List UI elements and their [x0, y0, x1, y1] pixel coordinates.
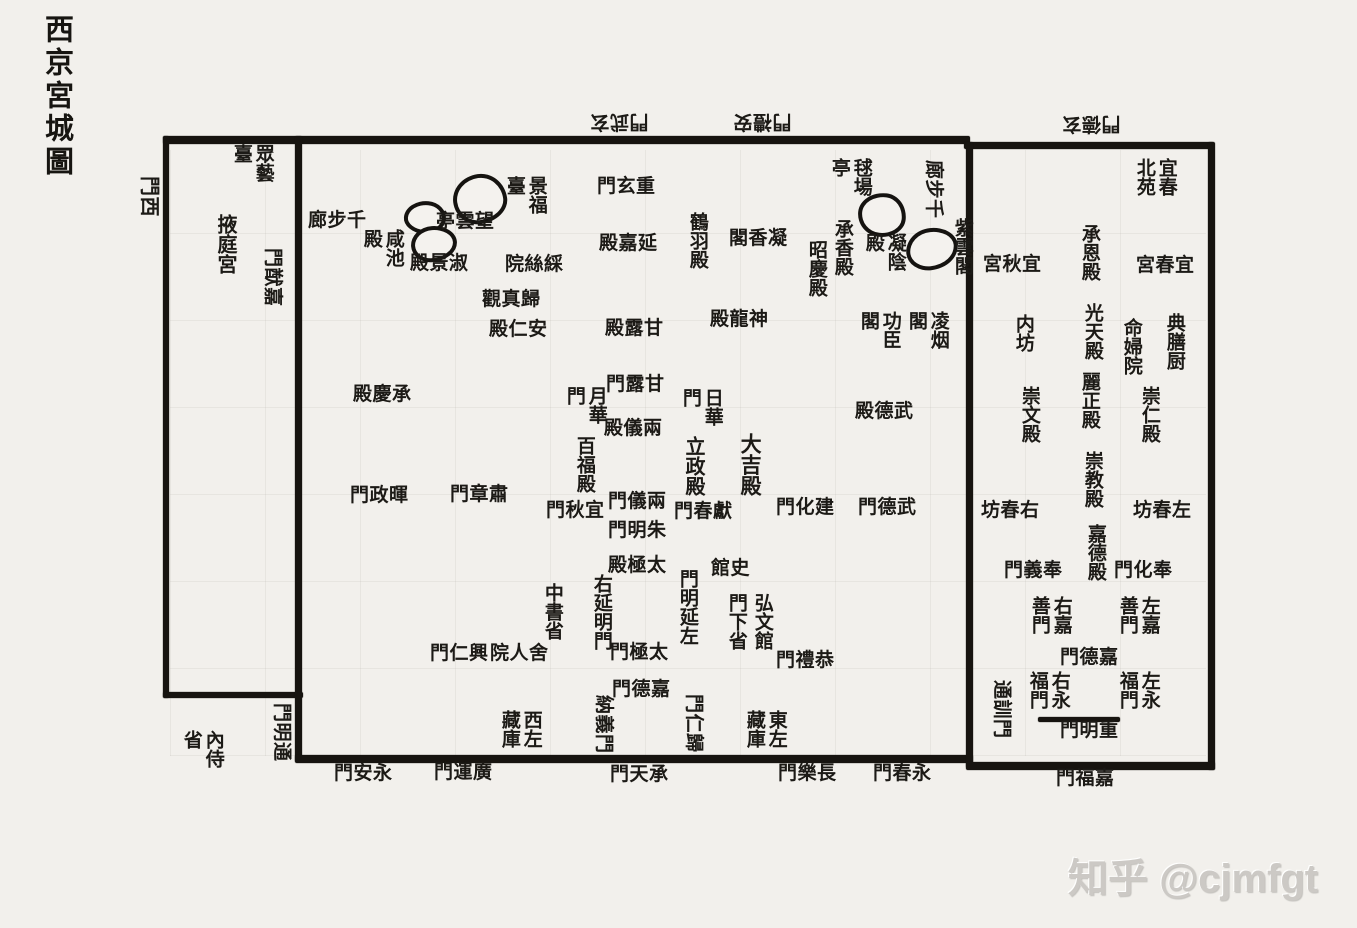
- north-wall-east: [964, 142, 1214, 149]
- liangyi-gate: 門儀兩: [608, 492, 667, 512]
- you-yanming-gate: 右延明門: [590, 574, 612, 650]
- xuande-gate: 門德玄: [1062, 113, 1121, 133]
- daji-hall: 大吉殿: [738, 433, 762, 496]
- ganlu-gate: 門露甘: [606, 375, 665, 395]
- anren-hall: 殿仁安: [489, 320, 548, 340]
- jiade-hall: 嘉德殿: [1084, 524, 1106, 581]
- neishi-department: 內侍省: [180, 730, 224, 774]
- chengen-hall: 承恩殿: [1078, 224, 1100, 281]
- nayi-gate: 納義門: [593, 695, 613, 754]
- taiji-hall: 殿極太: [608, 556, 667, 576]
- yiqiu-palace: 宮秋宜: [983, 255, 1042, 275]
- menxia-department: 門下省: [725, 593, 747, 650]
- gongchen-pavilion: 功臣閣: [857, 311, 901, 355]
- chengtian-gate: 門天承: [610, 765, 669, 785]
- xuanwu-gate: 門武玄: [590, 111, 649, 131]
- ningyin-hall: 凝陰殿: [862, 233, 906, 277]
- fenghua-gate: 門化奉: [1114, 561, 1173, 581]
- suzhang-gate: 門章肅: [450, 485, 509, 505]
- west-zuocang-store: 西左藏庫: [498, 710, 542, 754]
- qianbulang-west: 廊步千: [308, 211, 367, 231]
- taiji-gate: 門極太: [610, 643, 669, 663]
- north-wall-main: [163, 136, 970, 144]
- hongwen-academy: 弘文館: [751, 593, 773, 650]
- you-yongfu-gate: 右永福門: [1026, 671, 1070, 715]
- tongming-gate: 門明通: [271, 703, 291, 762]
- zhaoqing-hall: 昭慶殿: [805, 240, 827, 297]
- zhihu-watermark: 知乎 @cjmfgt: [1068, 846, 1318, 904]
- wude-hall: 殿德武: [855, 402, 914, 422]
- you-chunfang: 坊春右: [981, 501, 1040, 521]
- caisi-court: 院絲綵: [505, 255, 564, 275]
- xi-gate: 門西: [138, 176, 159, 217]
- zhongyi-terrace: 眾藝臺: [230, 144, 274, 188]
- baifu-hall: 百福殿: [573, 436, 595, 493]
- jiayou-gate: 門猷嘉: [262, 248, 282, 307]
- zhongshu-department: 中書省: [541, 583, 563, 640]
- palace-map: 門武玄門禮安門德玄門西門猷嘉門明通通訓門眾藝臺掖庭宮內侍省廊步千亭雲望景福臺咸池…: [0, 0, 1357, 928]
- ganlu-hall: 殿露甘: [605, 319, 664, 339]
- lizheng-hall-east: 麗正殿: [1078, 372, 1100, 429]
- chongxuan-gate: 門玄重: [597, 177, 656, 197]
- yichun-palace: 宮春宜: [1136, 256, 1195, 276]
- guiren-gate: 門仁歸: [683, 694, 703, 753]
- shujing-hall: 殿景淑: [410, 254, 469, 274]
- yiqiu-gate: 門秋宜: [546, 501, 605, 521]
- gongli-gate: 門禮恭: [776, 651, 835, 671]
- tongxun-gate: 通訓門: [991, 680, 1011, 739]
- jingfu-terrace: 景福臺: [503, 176, 547, 220]
- jianhua-gate: 門化建: [776, 498, 835, 518]
- changle-gate: 門樂長: [778, 764, 837, 784]
- yongan-gate: 門安永: [334, 764, 393, 784]
- wude-gate: 門德武: [858, 498, 917, 518]
- xingren-gate: 門仁興: [430, 644, 489, 664]
- huizheng-gate: 門政暉: [350, 486, 409, 506]
- qianbulang-north: 廊步千: [923, 160, 943, 219]
- fengyi-gate: 門義奉: [1004, 561, 1063, 581]
- zuo-chunfang: 坊春左: [1133, 501, 1192, 521]
- jiade-gate-inner: 門德嘉: [612, 680, 671, 700]
- chongming-gate: 門明重: [1060, 721, 1119, 741]
- guangtian-hall: 光天殿: [1081, 303, 1103, 360]
- yanjia-hall: 殿嘉延: [599, 234, 658, 254]
- zuo-jiashan-gate: 左嘉善門: [1116, 596, 1160, 640]
- south-wall-main: [295, 755, 973, 763]
- west-wall: [163, 136, 169, 698]
- guangyun-gate: 門運廣: [434, 763, 493, 783]
- jiafu-gate: 門福嘉: [1056, 769, 1115, 789]
- qiuchang-pavilion: 毬場亭: [828, 158, 872, 202]
- jiade-gate-east: 門德嘉: [1060, 648, 1119, 668]
- shi-guan: 館史: [711, 559, 750, 579]
- zuo-yanming-gate: 門明延左: [676, 569, 698, 645]
- yongchun-gate: 門春永: [873, 764, 932, 784]
- wangyun-pavilion: 亭雲望: [436, 212, 495, 232]
- you-jiashan-gate: 右嘉善門: [1028, 596, 1072, 640]
- dianshan-kitchen: 典膳厨: [1163, 313, 1185, 370]
- zhuming-gate: 門明朱: [608, 521, 667, 541]
- ningxiang-pavilion: 閣香凝: [729, 229, 788, 249]
- eastpalace-east-wall: [1208, 142, 1215, 770]
- chongwen-hall: 崇文殿: [1018, 386, 1040, 443]
- ziyun-pavilion: 紫雲閣: [951, 218, 973, 275]
- xianchi-hall: 咸池殿: [360, 229, 404, 273]
- yeting-palace: 掖庭宮: [213, 214, 236, 274]
- xianchun-gate: 門春獻: [674, 502, 733, 522]
- shenlong-hall: 殿龍神: [710, 310, 769, 330]
- anli-gate: 門禮安: [733, 111, 792, 131]
- chengqing-hall: 殿慶承: [353, 385, 412, 405]
- east-zuocang-store: 東左藏庫: [743, 710, 787, 754]
- yuehua-gate: 月華門: [563, 386, 607, 430]
- lizheng-hall: 立政殿: [681, 436, 704, 496]
- lingyan-pavilion: 凌烟閣: [905, 311, 949, 355]
- chongren-hall: 崇仁殿: [1138, 386, 1160, 443]
- zuo-yongfu-gate: 左永福門: [1116, 671, 1160, 715]
- sheren-court: 院人舍: [490, 644, 549, 664]
- heyu-hall: 鶴羽殿: [686, 212, 708, 269]
- guizhen-abbey: 觀真歸: [482, 290, 541, 310]
- mingfu-court: 命婦院: [1120, 318, 1142, 375]
- rihua-gate: 日華門: [679, 388, 723, 432]
- nei-fang: 内坊: [1012, 314, 1034, 352]
- yeting-east-wall: [295, 136, 302, 762]
- scanned-map-page: 西京宮城圖 門武玄門禮安門德玄門西門猷嘉門明通通訓門眾藝臺掖庭宮內侍省廊步千亭雲…: [0, 0, 1357, 928]
- yeting-south-wall: [163, 692, 303, 698]
- liangyi-hall: 殿儀兩: [604, 419, 663, 439]
- chengxiang-hall: 承香殿: [831, 219, 853, 276]
- yichun-north-park: 宜春北苑: [1133, 158, 1177, 202]
- chongjiao-hall: 崇教殿: [1081, 451, 1103, 508]
